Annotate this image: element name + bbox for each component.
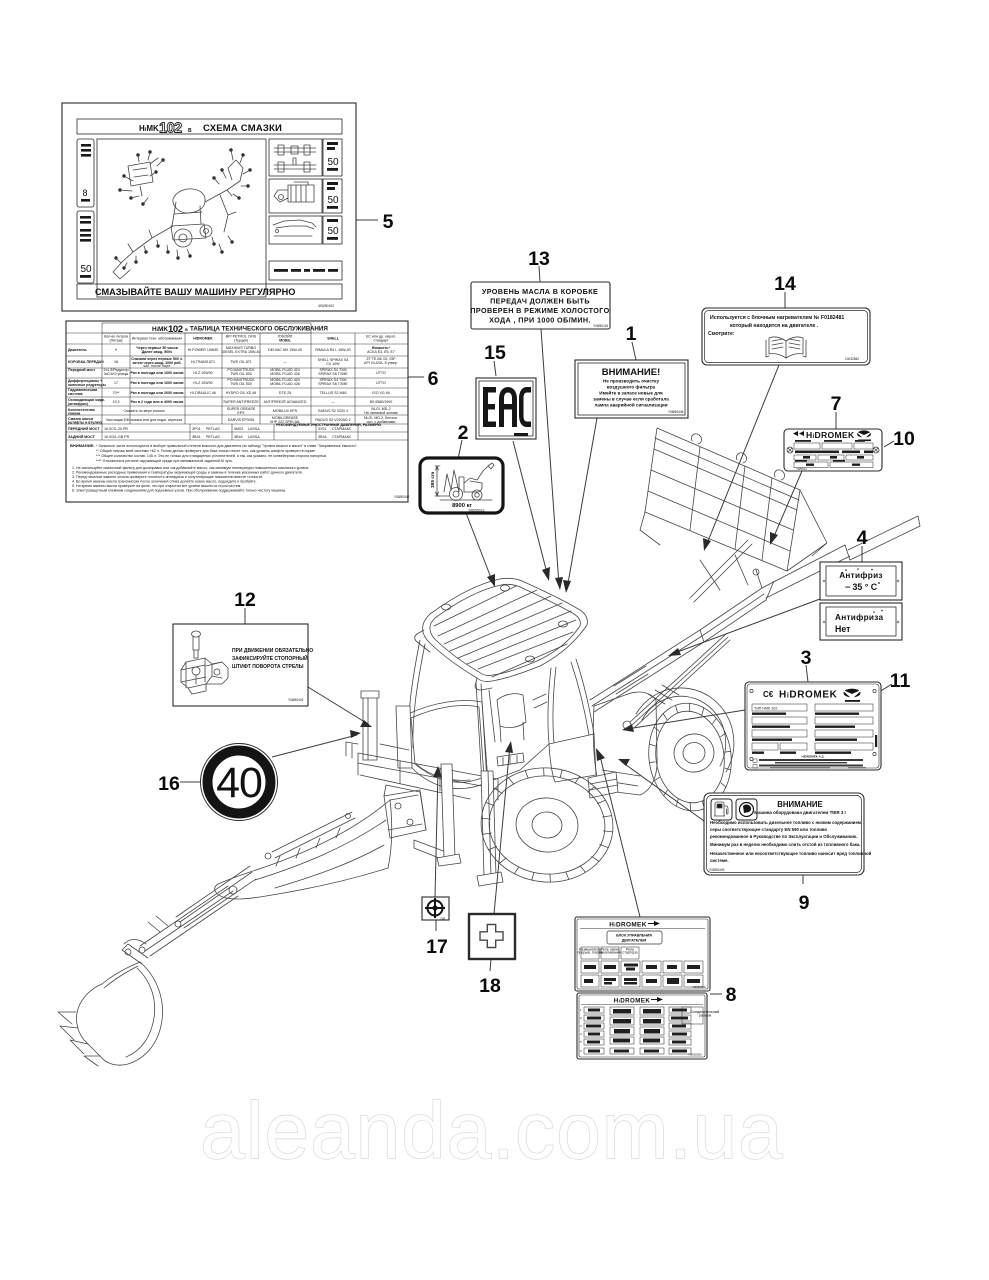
- svg-text:GADUS S2 V220 2: GADUS S2 V220 2: [318, 409, 349, 413]
- svg-text:2. Рекомендованные расходные: 2. Рекомендованные расходные примечания …: [72, 471, 303, 475]
- svg-text:HI POWER 10W40: HI POWER 10W40: [188, 348, 219, 352]
- svg-text:PETLAS: PETLAS: [206, 427, 220, 431]
- svg-text:Не производить очистку: Не производить очистку: [603, 379, 660, 384]
- svg-text:HiMK: HiMK: [152, 326, 168, 333]
- svg-text:9: 9: [799, 892, 810, 914]
- svg-text:PETLAS: PETLAS: [206, 435, 220, 439]
- svg-text:UTTO: UTTO: [376, 381, 386, 385]
- svg-text:Используется с блочным нагр: Используется с блочным нагревателем № F0…: [710, 314, 844, 321]
- svg-text:(Турция): (Турция): [234, 339, 248, 343]
- svg-text:10: 10: [893, 428, 915, 450]
- svg-text:HI-Z 10W30: HI-Z 10W30: [193, 371, 212, 375]
- svg-text:Y08/50449: Y08/50449: [709, 868, 725, 872]
- svg-text:3: 3: [801, 647, 812, 669]
- svg-text:**** Отложения в регионе окруж: **** Отложения в регионе окружающей сред…: [96, 459, 233, 463]
- svg-text:50: 50: [327, 157, 339, 168]
- svg-text:ТИП HMK 102: ТИП HMK 102: [754, 707, 777, 711]
- svg-text:HiDROMEK: HiDROMEK: [609, 922, 647, 929]
- svg-text:ACEA E3, E5, E7: ACEA E3, E5, E7: [367, 350, 395, 354]
- svg-text:Двигатель: Двигатель: [68, 348, 88, 352]
- svg-text:3x0,5/Ступицы: 3x0,5/Ступицы: [104, 372, 129, 376]
- svg-text:Антифриз: Антифриз: [839, 571, 883, 580]
- svg-text:DIESEL EXTRA 15W-40: DIESEL EXTRA 15W-40: [222, 350, 261, 354]
- svg-text:16,9/34–GB PR: 16,9/34–GB PR: [104, 435, 130, 439]
- svg-text:Имейте в запасе новые для: Имейте в запасе новые для: [599, 390, 663, 396]
- svg-text:Смазать по мере износа: Смазать по мере износа: [124, 409, 165, 413]
- svg-text:ХОДА , ПРИ 1000 ОБ/МИН.: ХОДА , ПРИ 1000 ОБ/МИН.: [489, 316, 591, 325]
- svg-text:Некачественное или несоответст: Некачественное или несоответствующее топ…: [710, 851, 872, 856]
- svg-text:ВНИМАНИЕ: ВНИМАНИЕ: [777, 800, 822, 809]
- svg-text:MOBIL FLUID 426: MOBIL FLUID 426: [270, 372, 299, 376]
- svg-text:1: 1: [626, 323, 637, 345]
- svg-text:HIDROMEK A.Ş.: HIDROMEK A.Ş.: [802, 755, 825, 759]
- svg-text:17: 17: [426, 936, 448, 958]
- svg-text:RIMULA R4 L 15W-40: RIMULA R4 L 15W-40: [315, 348, 350, 352]
- svg-text:2: 2: [458, 422, 469, 444]
- svg-text:LASSA: LASSA: [248, 435, 260, 439]
- svg-text:HI-ORAULIC 46: HI-ORAULIC 46: [190, 391, 216, 395]
- svg-text:102: 102: [159, 121, 182, 137]
- svg-text:TWS OIL 500: TWS OIL 500: [230, 372, 252, 376]
- svg-text:Далее кажд. 500ч: Далее кажд. 500ч: [142, 350, 173, 354]
- svg-text:ПРИ ДВИЖЕНИИ ОБЯЗАТЕЛЬНО: ПРИ ДВИЖЕНИИ ОБЯЗАТЕЛЬНО: [232, 648, 313, 654]
- svg-text:TWS OIL 871: TWS OIL 871: [230, 360, 252, 364]
- svg-text:4: 4: [857, 527, 868, 549]
- svg-text:40: 40: [216, 759, 262, 807]
- svg-text:воздушного фильтра: воздушного фильтра: [607, 384, 656, 390]
- svg-text:EPS: EPS: [237, 411, 245, 415]
- svg-text:ВНИМАНИЕ:: ВНИМАНИЕ:: [70, 443, 95, 448]
- svg-text:SHELL: SHELL: [327, 337, 340, 341]
- svg-text:5: 5: [383, 211, 394, 233]
- svg-text:Y08/50116: Y08/50116: [593, 324, 608, 328]
- svg-text:стандарт: стандарт: [373, 339, 388, 343]
- svg-text:HYDRO OIL XD 46: HYDRO OIL XD 46: [226, 391, 257, 395]
- svg-text:(Литры): (Литры): [110, 339, 123, 343]
- svg-text:SUPER ANTIFREEZE: SUPER ANTIFREEZE: [223, 400, 259, 404]
- svg-text:ЗВ44: ЗВ44: [234, 435, 243, 439]
- svg-text:B: B: [188, 128, 192, 134]
- svg-text:12: 12: [234, 589, 256, 611]
- svg-text:Раз в полгода или 1000 часов: Раз в полгода или 1000 часов: [130, 381, 184, 385]
- svg-text:RADUS S2 V220AD 2: RADUS S2 V220AD 2: [315, 418, 350, 422]
- svg-text:ISO VG 46: ISO VG 46: [372, 391, 389, 395]
- svg-text:ЗВ44: ЗВ44: [318, 435, 327, 439]
- svg-text:70**: 70**: [113, 391, 120, 395]
- svg-text:400/50102: 400/50102: [318, 304, 334, 308]
- svg-text:MOBILUX EPS: MOBILUX EPS: [273, 409, 298, 413]
- svg-text:1. Не используйте смазочный ф: 1. Не используйте смазочный фильтр для д…: [72, 466, 309, 470]
- svg-text:50: 50: [327, 226, 339, 237]
- svg-text:который находится на двигат: который находится на двигателе .: [730, 322, 819, 329]
- svg-text:4. Во время замены масла тран: 4. Во время замены масла трансмиссии пос…: [72, 480, 257, 484]
- svg-text:C€: C€: [763, 690, 774, 699]
- svg-text:TELLUS S2 M46: TELLUS S2 M46: [320, 391, 347, 395]
- svg-text:ТАБЛИЦА ТЕХНИЧЕСКОГО ОБСЛУЖИВА: ТАБЛИЦА ТЕХНИЧЕСКОГО ОБСЛУЖИВАНИЯ: [190, 326, 328, 333]
- svg-text:385 cm: 385 cm: [430, 472, 436, 488]
- svg-text:Раз в 2 года или в 4000 часов: Раз в 2 года или в 4000 часов: [131, 400, 184, 404]
- svg-text:—: —: [283, 360, 287, 364]
- svg-text:СТАРМАКС: СТАРМАКС: [332, 435, 352, 439]
- svg-text:КОРОБКА ПЕРЕДАЧ: КОРОБКА ПЕРЕДАЧ: [68, 360, 104, 364]
- svg-text:14: 14: [774, 273, 796, 295]
- svg-text:система: система: [68, 392, 84, 396]
- svg-text:Y08/50029: Y08/50029: [692, 985, 706, 989]
- svg-text:ЗАФИКСИРУЙТЕ СТОПОРНЫЙ: ЗАФИКСИРУЙТЕ СТОПОРНЫЙ: [232, 654, 308, 662]
- svg-text:CX 10W: CX 10W: [326, 362, 340, 366]
- svg-text:6: 6: [428, 368, 439, 390]
- svg-text:Y8/5011: Y8/5011: [796, 467, 807, 471]
- svg-text:BS 6580/1992: BS 6580/1992: [370, 400, 393, 404]
- svg-text:стартера: стартера: [623, 951, 638, 955]
- svg-text:17: 17: [114, 381, 118, 385]
- svg-text:HI-Z 10W30: HI-Z 10W30: [193, 381, 212, 385]
- svg-text:ШТИФТ ПОВОРОТА СТРЕЛЫ: ШТИФТ ПОВОРОТА СТРЕЛЫ: [232, 664, 304, 670]
- svg-text:7: 7: [831, 393, 842, 415]
- svg-text:ЗУ01: ЗУ01: [318, 427, 326, 431]
- svg-text:час. после тщат.: час. после тщат.: [143, 364, 170, 368]
- svg-text:Y08: Y08: [440, 917, 445, 921]
- svg-text:Интервал техн. обслуживания: Интервал техн. обслуживания: [132, 337, 182, 341]
- svg-text:11: 11: [890, 670, 911, 692]
- svg-text:рекомендованное в Руководстве: рекомендованное в Руководстве по Эксплуа…: [710, 834, 857, 839]
- svg-text:Необходимо использовать дизель: Необходимо использовать дизельное топлив…: [710, 820, 861, 825]
- svg-text:50: 50: [80, 264, 92, 275]
- svg-text:лампа аварийной сигнализации: лампа аварийной сигнализации: [594, 402, 667, 408]
- svg-text:Y08/50013: Y08/50013: [468, 509, 485, 513]
- svg-text:10032842: 10032842: [845, 357, 859, 361]
- svg-text:Раз в полгода или 2000 часов: Раз в полгода или 2000 часов: [130, 391, 184, 395]
- svg-text:замены в случае если сработала: замены в случае если сработала: [593, 396, 669, 402]
- svg-text:Передний мост: Передний мост: [68, 368, 95, 372]
- svg-text:ПРОВЕРЕН В РЕЖИМЕ ХОЛОСТОГО: ПРОВЕРЕН В РЕЖИМЕ ХОЛОСТОГО: [470, 306, 609, 315]
- svg-text:LASSA: LASSA: [248, 427, 260, 431]
- svg-text:6. Электрозащитным клеммам со: 6. Электрозащитным клеммам соединениям д…: [72, 489, 286, 493]
- svg-text:13: 13: [528, 248, 550, 270]
- svg-text:− 35 ° C: − 35 ° C: [845, 582, 878, 592]
- svg-text:Минимум раз в неделю необходим: Минимум раз в неделю необходимо слить от…: [710, 842, 861, 847]
- svg-text:5. На время замены масла пров: 5. На время замены масла проверьте на фо…: [72, 484, 241, 488]
- svg-text:БЛОК УПРАВЛЕНИЯ: БЛОК УПРАВЛЕНИЯ: [616, 934, 652, 938]
- svg-text:Машина оборудована двигателем: Машина оборудована двигателем TIER 3 I: [754, 810, 845, 815]
- svg-text:Y08/50442: Y08/50442: [288, 698, 304, 702]
- svg-text:—: —: [331, 400, 335, 404]
- svg-text:API GL4/GL-5 утвер.: API GL4/GL-5 утвер.: [364, 361, 398, 365]
- svg-text:(штифты и втулки): (штифты и втулки): [68, 421, 103, 425]
- svg-text:aleanda.com.ua: aleanda.com.ua: [200, 1086, 783, 1175]
- svg-text:50: 50: [327, 195, 339, 206]
- svg-text:* Запасные части используются: * Запасные части используются в выборе п…: [96, 444, 358, 448]
- svg-text:ПЕРЕДНИЙ МОСТ: ПЕРЕДНИЙ МОСТ: [68, 427, 100, 431]
- svg-text:разъем: разъем: [699, 1014, 712, 1018]
- svg-text:колесные редукторы: колесные редукторы: [68, 383, 106, 387]
- svg-text:8: 8: [82, 188, 87, 198]
- svg-text:Y08/50446: Y08/50446: [668, 410, 684, 414]
- svg-text:Раз в полгода или 1000 часов: Раз в полгода или 1000 часов: [130, 371, 184, 375]
- svg-text:СМАЗЫВАЙТЕ ВАШУ МАШИНУ РЕГУЛЯР: СМАЗЫВАЙТЕ ВАШУ МАШИНУ РЕГУЛЯРНО: [95, 286, 295, 297]
- svg-text:ЗР01: ЗР01: [192, 427, 201, 431]
- svg-text:*** Общее количество состав. 1: *** Общее количество состав. 145 л. Это …: [96, 454, 327, 458]
- svg-text:3. Перед началом зимнего сезо: 3. Перед началом зимнего сезона проверьт…: [72, 475, 263, 479]
- svg-text:ЗВ41: ЗВ41: [192, 435, 201, 439]
- svg-text:SPIRAX S6 TXME: SPIRAX S6 TXME: [318, 372, 348, 376]
- svg-text:19,3: 19,3: [113, 400, 120, 404]
- svg-text:DTE 25: DTE 25: [279, 391, 291, 395]
- svg-text:4М03: 4М03: [234, 427, 243, 431]
- svg-text:HIDROMEK: HIDROMEK: [193, 337, 213, 341]
- svg-text:Y08/50030: Y08/50030: [688, 1053, 702, 1057]
- svg-text:SPIRAX S6 TXME: SPIRAX S6 TXME: [318, 382, 348, 386]
- svg-text:серы соответствующее стандарту: серы соответствующее стандарту EN 590 ил…: [710, 827, 827, 832]
- svg-text:УРОВЕНЬ МАСЛА В КОРОБКЕ: УРОВЕНЬ МАСЛА В КОРОБКЕ: [482, 287, 598, 296]
- svg-text:DARVIS EP3/S5: DARVIS EP3/S5: [228, 418, 255, 422]
- svg-text:DELVAC MX 15W-40: DELVAC MX 15W-40: [268, 348, 302, 352]
- svg-text:18: 18: [479, 975, 501, 997]
- svg-text:B: B: [185, 328, 188, 332]
- svg-text:Чистящая ЕЖ смазки или для под: Чистящая ЕЖ смазки или для подш. агрегат…: [106, 418, 182, 422]
- svg-text:TWS OIL 500: TWS OIL 500: [230, 382, 252, 386]
- svg-text:На литиевой основе: На литиевой основе: [364, 411, 398, 415]
- svg-text:HiDROMEK: HiDROMEK: [614, 998, 651, 1005]
- svg-text:16,5/70–20 PR: 16,5/70–20 PR: [104, 427, 128, 431]
- svg-text:ANTIFREEZE ADVANCED: ANTIFREEZE ADVANCED: [264, 400, 307, 404]
- svg-text:15: 15: [484, 342, 506, 364]
- svg-text:ПЕРЕДАЧ ДОЛЖЕН БЫТЬ: ПЕРЕДАЧ ДОЛЖЕН БЫТЬ: [490, 297, 590, 306]
- svg-text:Смотрите:: Смотрите:: [708, 331, 735, 337]
- svg-text:ВНИМАНИЕ!: ВНИМАНИЕ!: [602, 367, 661, 378]
- svg-text:Нет: Нет: [835, 624, 851, 634]
- svg-text:HiMK: HiMK: [139, 124, 159, 133]
- svg-text:(антифриз): (антифриз): [68, 402, 89, 406]
- svg-text:** Общий литраж всей системы +: ** Общий литраж всей системы +62 л. Пото…: [96, 449, 315, 453]
- svg-text:СХЕМА СМАЗКИ: СХЕМА СМАЗКИ: [203, 123, 282, 134]
- svg-text:смазка: смазка: [68, 412, 81, 416]
- svg-text:HI-TRANS 871: HI-TRANS 871: [191, 360, 215, 364]
- svg-text:ЗАДНИЙ МОСТ: ЗАДНИЙ МОСТ: [68, 435, 96, 439]
- svg-text:системе.: системе.: [710, 858, 729, 863]
- svg-text:8: 8: [726, 984, 737, 1006]
- svg-text:РЕКОМЕНДУЕМЫЕ ИНОСТРАННЫЕ ДАВЛ: РЕКОМЕНДУЕМЫЕ ИНОСТРАННЫЕ ДАВЛЕНИЯ, РАЗМ…: [276, 423, 381, 427]
- svg-text:UTTO: UTTO: [376, 371, 386, 375]
- svg-text:9: 9: [115, 348, 117, 352]
- svg-text:Y08/50042: Y08/50042: [394, 495, 410, 499]
- svg-text:16: 16: [158, 773, 180, 795]
- svg-text:16: 16: [114, 360, 118, 364]
- svg-text:Антифриза: Антифриза: [835, 613, 883, 622]
- svg-text:ДВИГАТЕЛЕМ: ДВИГАТЕЛЕМ: [622, 939, 646, 943]
- svg-text:СТАРМАКС: СТАРМАКС: [332, 427, 352, 431]
- svg-text:накаливания: накаливания: [599, 951, 621, 955]
- svg-text:MOBIL: MOBIL: [279, 339, 291, 343]
- svg-text:MOBIL FLUID 426: MOBIL FLUID 426: [270, 382, 299, 386]
